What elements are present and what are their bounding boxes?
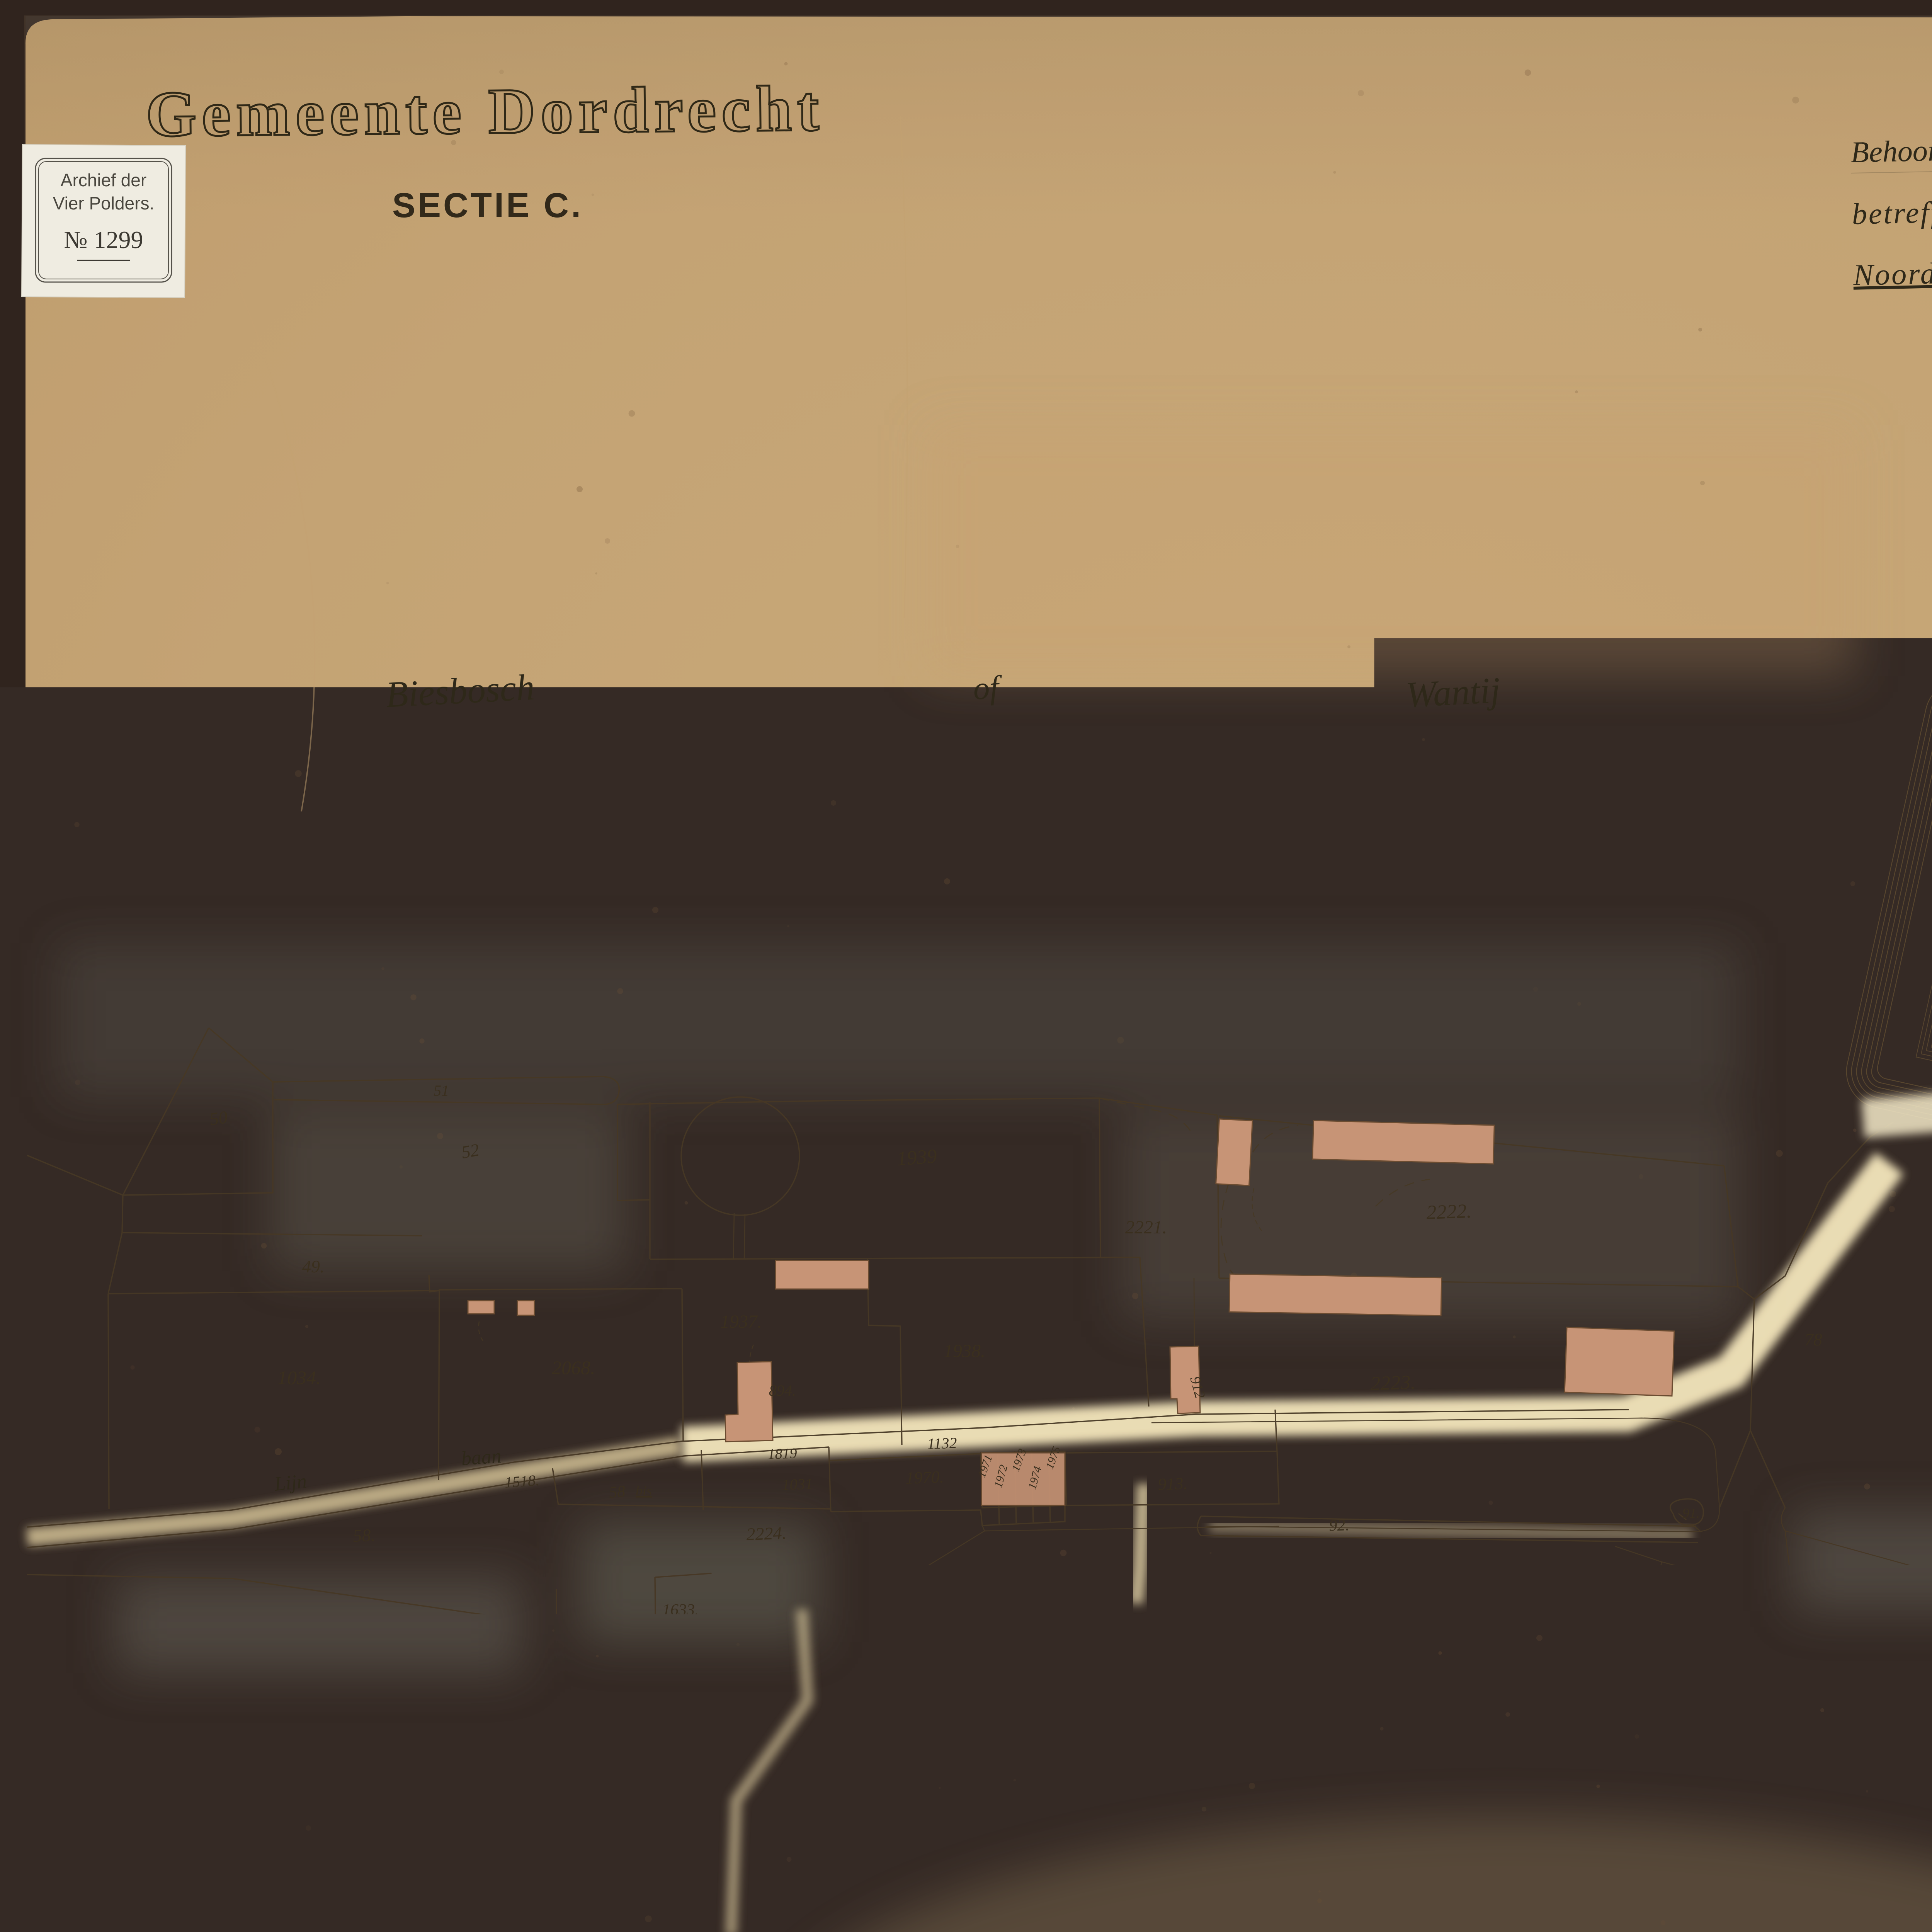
svg-text:1034.: 1034. [277,1367,321,1388]
svg-text:2223.: 2223. [1370,1371,1416,1395]
svg-text:1938.: 1938. [944,1341,985,1361]
svg-text:94.: 94. [901,1729,923,1748]
svg-text:2221.: 2221. [1125,1217,1167,1238]
svg-text:bis: bis [636,1483,652,1498]
svg-text:SECTIE C.: SECTIE C. [392,186,583,225]
svg-text:1819: 1819 [767,1445,797,1463]
svg-text:58: 58 [608,1483,626,1502]
svg-text:Gemeente Dordrecht: Gemeente Dordrecht [146,73,825,150]
svg-text:58.: 58. [353,1525,376,1546]
svg-text:1939: 1939 [896,1145,938,1170]
svg-text:85: 85 [1783,1817,1797,1832]
svg-text:91.: 91. [1682,1505,1700,1521]
svg-text:Archief der: Archief der [61,170,146,190]
svg-text:2222.: 2222. [1426,1200,1472,1224]
svg-text:84: 84 [1809,1820,1823,1835]
svg-text:87: 87 [1530,1822,1546,1838]
svg-text:1031: 1031 [782,1475,813,1493]
svg-text:1633.: 1633. [662,1601,699,1619]
svg-text:2155: 2155 [729,1713,760,1730]
svg-text:bis: bis [1869,1600,1888,1617]
svg-text:Wantij: Wantij [1405,669,1502,715]
svg-text:1132: 1132 [927,1434,957,1452]
svg-text:78: 78 [1804,1330,1822,1349]
svg-text:Vier Polders.: Vier Polders. [53,193,155,213]
svg-text:1630: 1630 [660,1679,689,1695]
svg-text:88: 88 [1333,1807,1349,1824]
svg-text:1629: 1629 [655,1743,685,1760]
svg-text:1937.: 1937. [720,1311,762,1332]
svg-text:2224.: 2224. [746,1523,787,1544]
svg-text:№ 1299: № 1299 [64,226,143,253]
svg-text:16: 16 [696,1730,708,1744]
svg-text:baan: baan [461,1445,502,1470]
svg-text:Lijn: Lijn [273,1470,308,1495]
svg-text:894.: 894. [769,1382,796,1399]
svg-text:89: 89 [1376,1730,1392,1747]
svg-text:1814: 1814 [872,1616,908,1635]
svg-text:49.: 49. [302,1257,325,1276]
svg-text:90.: 90. [1430,1587,1452,1607]
svg-text:2068.: 2068. [552,1357,595,1378]
svg-text:92.: 92. [1329,1516,1350,1535]
svg-text:913.: 913. [1158,1474,1188,1494]
svg-text:50: 50 [208,1107,229,1129]
svg-text:1518.: 1518. [504,1471,540,1491]
svg-text:82: 82 [1891,1832,1906,1848]
svg-text:1970.: 1970. [905,1468,944,1488]
svg-text:Biesbosch: Biesbosch [385,667,536,715]
svg-text:86: 86 [1843,1600,1861,1620]
svg-text:83: 83 [1857,1828,1872,1844]
svg-text:51: 51 [434,1082,449,1099]
svg-text:97: 97 [604,1731,625,1753]
svg-text:52: 52 [460,1140,481,1162]
svg-text:1628.: 1628. [575,1635,613,1654]
